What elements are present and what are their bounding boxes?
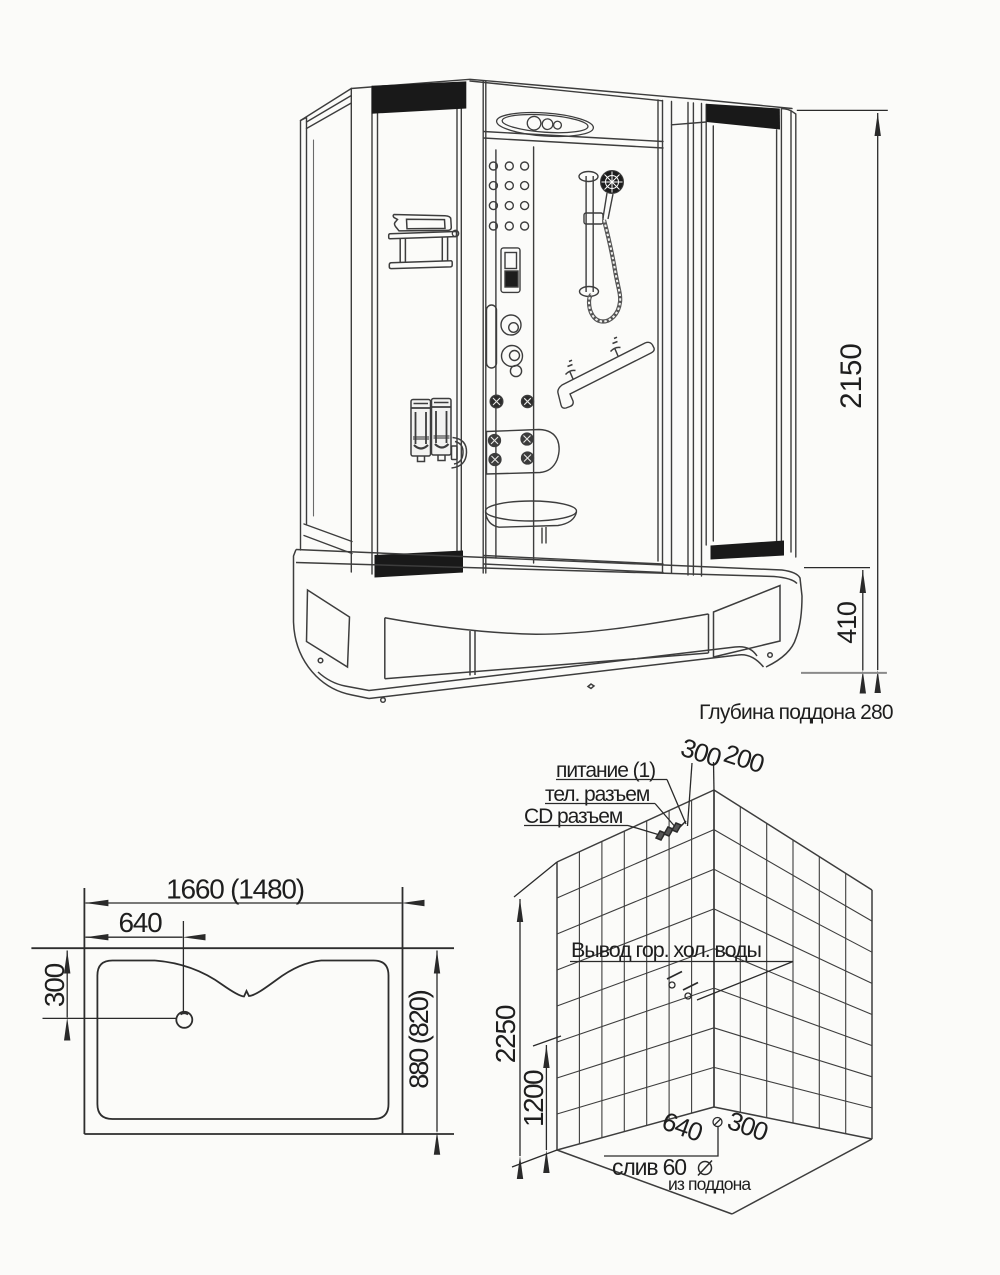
svg-text:из поддона: из поддона [668,1174,751,1194]
svg-text:410: 410 [832,602,862,644]
svg-text:640: 640 [118,907,162,938]
svg-text:200: 200 [720,738,768,779]
svg-text:880 (820): 880 (820) [404,990,434,1089]
svg-text:Вывод гор. хол. воды: Вывод гор. хол. воды [571,938,761,962]
svg-text:300: 300 [724,1105,772,1147]
svg-text:640: 640 [658,1106,706,1148]
svg-text:CD разъем: CD разъем [524,805,622,828]
svg-text:300: 300 [677,732,725,773]
svg-text:2250: 2250 [490,1005,521,1063]
svg-text:1660 (1480): 1660 (1480) [166,874,304,905]
svg-text:питание (1): питание (1) [556,759,655,782]
svg-text:Глубина поддона 280: Глубина поддона 280 [699,701,893,724]
svg-text:1200: 1200 [518,1070,549,1127]
svg-text:тел. разъем: тел. разъем [545,783,649,806]
svg-text:2150: 2150 [835,343,868,409]
svg-text:300: 300 [39,963,70,1007]
